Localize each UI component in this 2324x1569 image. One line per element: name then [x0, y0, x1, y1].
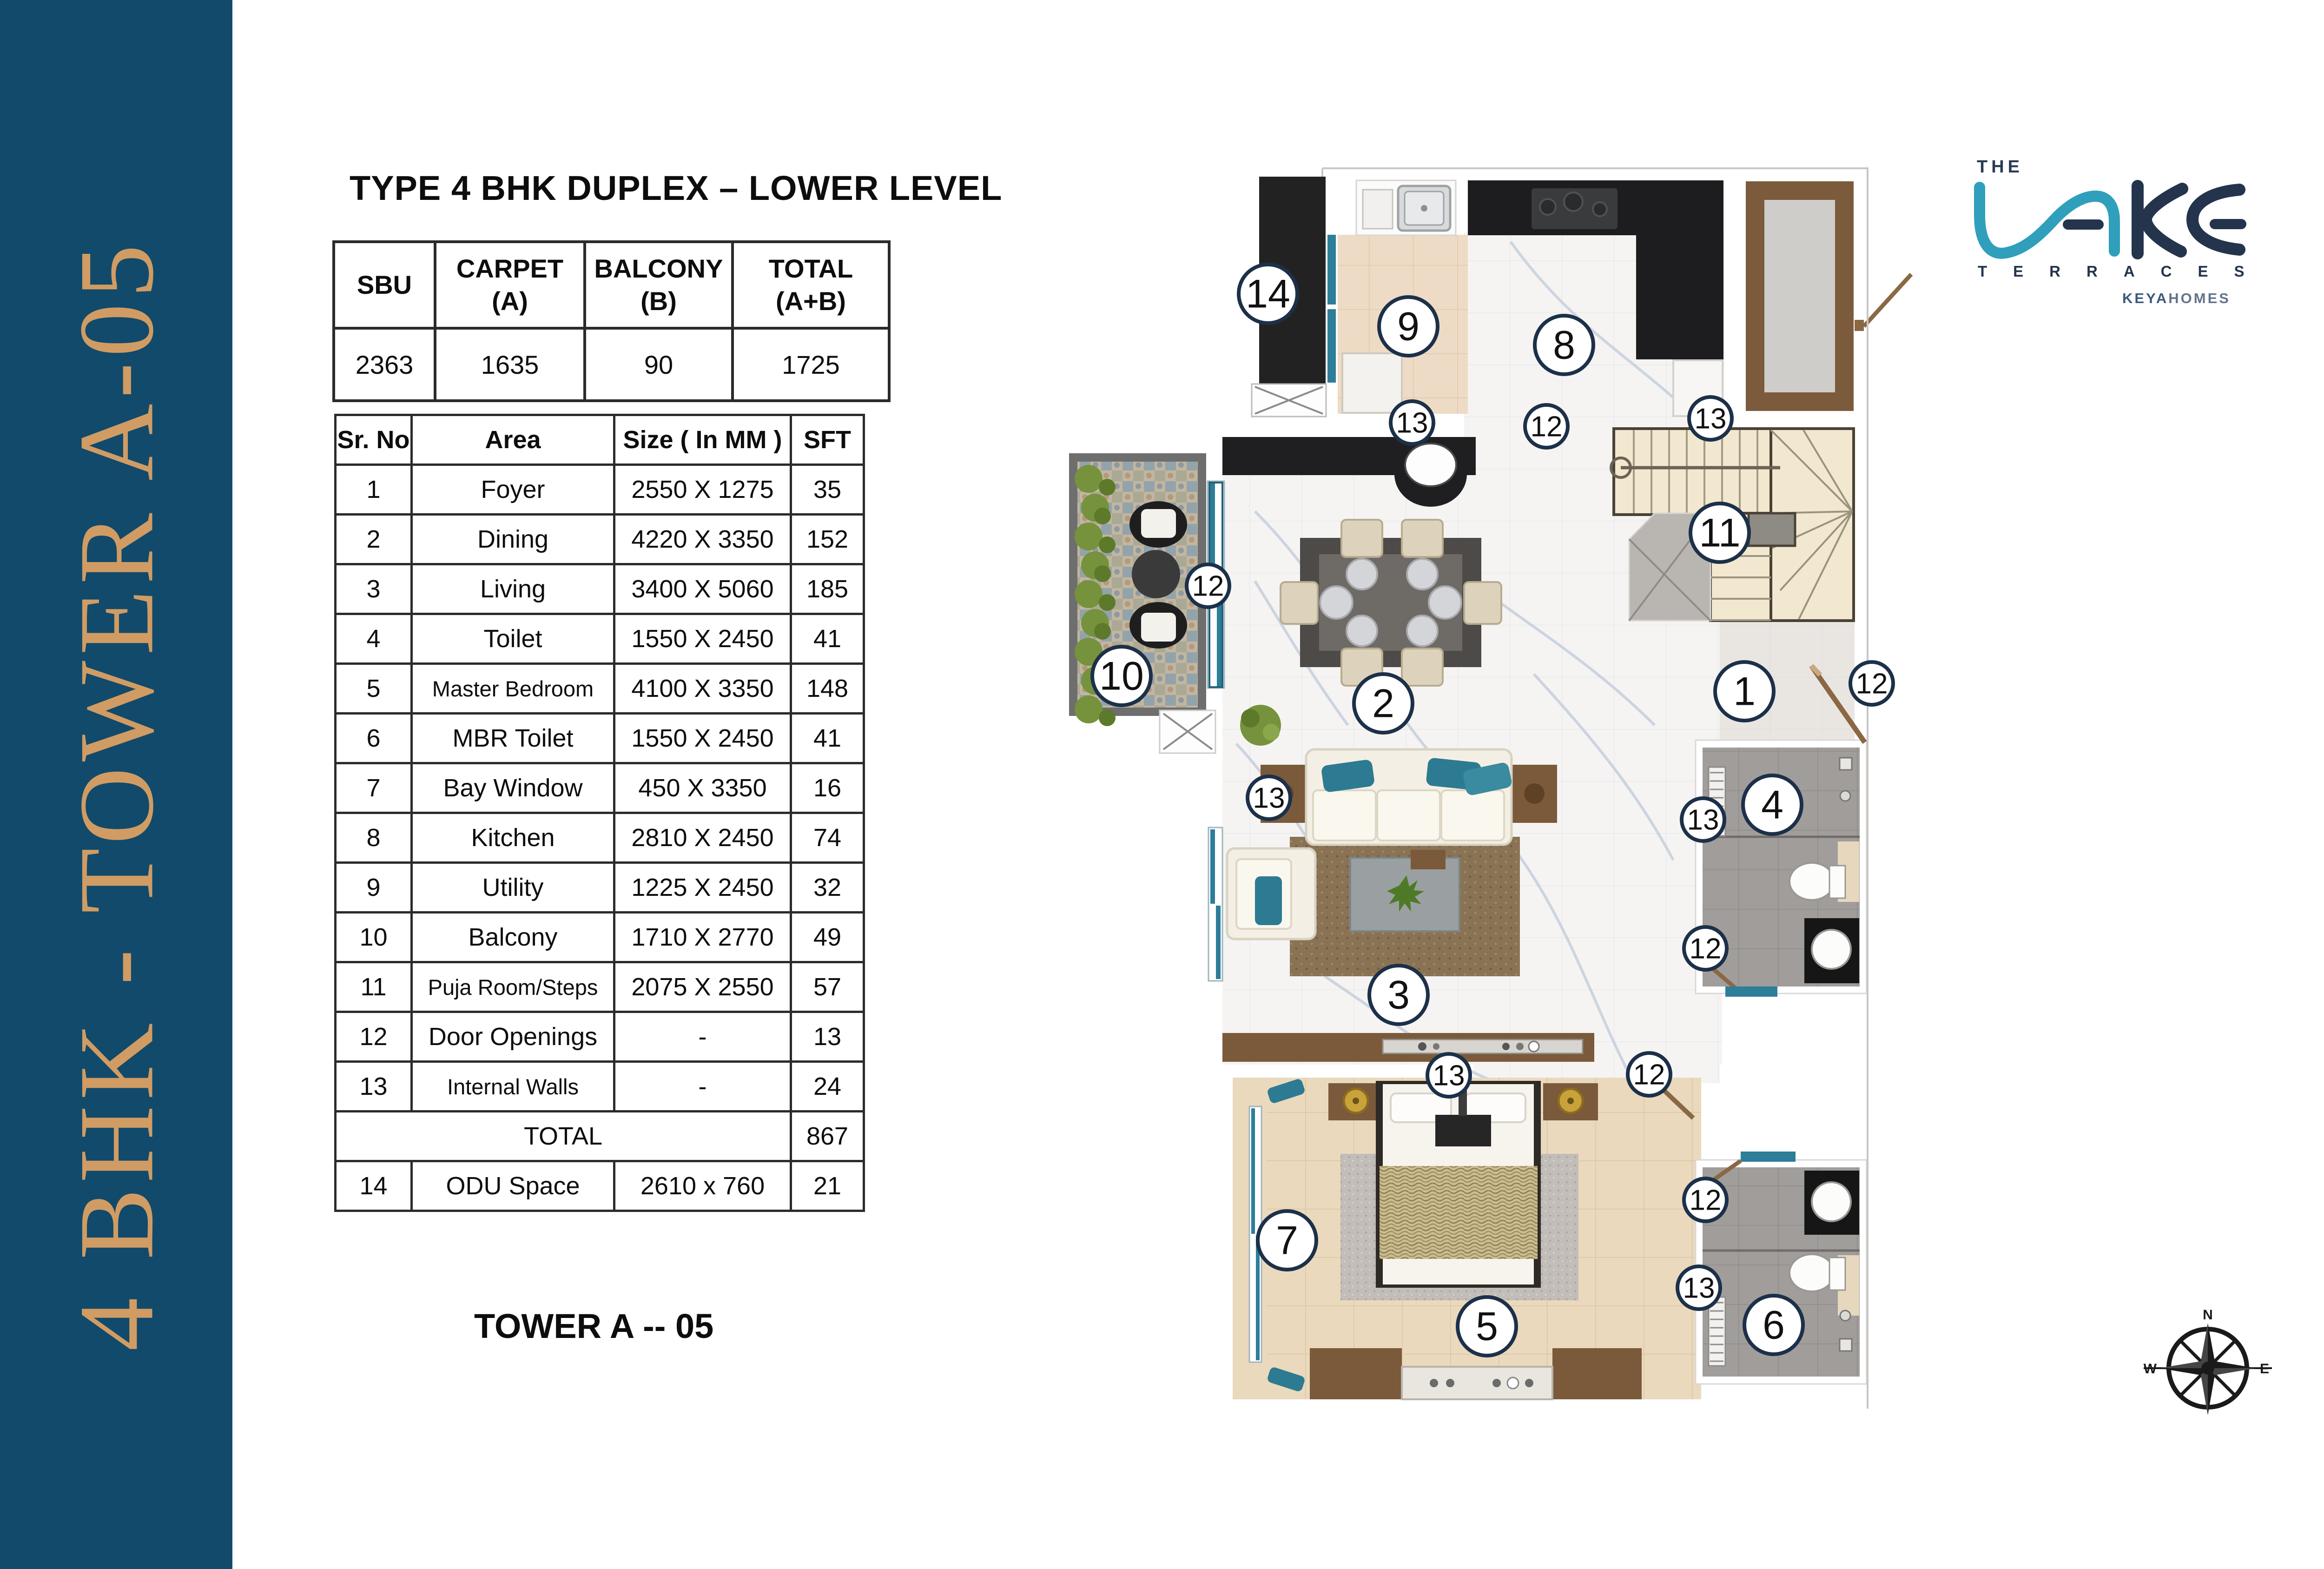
svg-text:13: 13: [1253, 782, 1285, 814]
svg-text:12: 12: [1192, 570, 1224, 602]
svg-text:5: 5: [1476, 1304, 1498, 1349]
svg-text:12: 12: [1633, 1059, 1665, 1091]
svg-text:11: 11: [1699, 511, 1740, 556]
svg-text:6: 6: [1763, 1303, 1785, 1348]
svg-text:9: 9: [1397, 305, 1419, 349]
svg-text:12: 12: [1531, 410, 1563, 443]
svg-text:8: 8: [1553, 323, 1575, 368]
svg-text:13: 13: [1687, 804, 1719, 836]
svg-text:12: 12: [1690, 933, 1722, 965]
svg-text:10: 10: [1099, 654, 1144, 699]
svg-text:7: 7: [1276, 1218, 1298, 1263]
svg-text:4: 4: [1761, 783, 1783, 828]
svg-text:THE: THE: [1977, 157, 2023, 177]
svg-text:2: 2: [1372, 682, 1394, 726]
svg-text:TERRACES: TERRACES: [1978, 263, 2271, 280]
svg-text:E: E: [2260, 1361, 2269, 1377]
svg-text:13: 13: [1433, 1059, 1465, 1092]
svg-text:KEYAHOMES: KEYAHOMES: [2122, 290, 2231, 306]
svg-text:12: 12: [1690, 1184, 1722, 1216]
svg-text:N: N: [2203, 1307, 2213, 1323]
svg-text:W: W: [2144, 1361, 2157, 1377]
svg-text:12: 12: [1856, 668, 1888, 700]
svg-text:13: 13: [1695, 403, 1727, 435]
svg-text:1: 1: [1733, 669, 1756, 714]
svg-text:14: 14: [1246, 272, 1290, 317]
svg-text:13: 13: [1396, 407, 1428, 439]
svg-text:13: 13: [1683, 1272, 1715, 1304]
svg-text:3: 3: [1387, 973, 1410, 1018]
